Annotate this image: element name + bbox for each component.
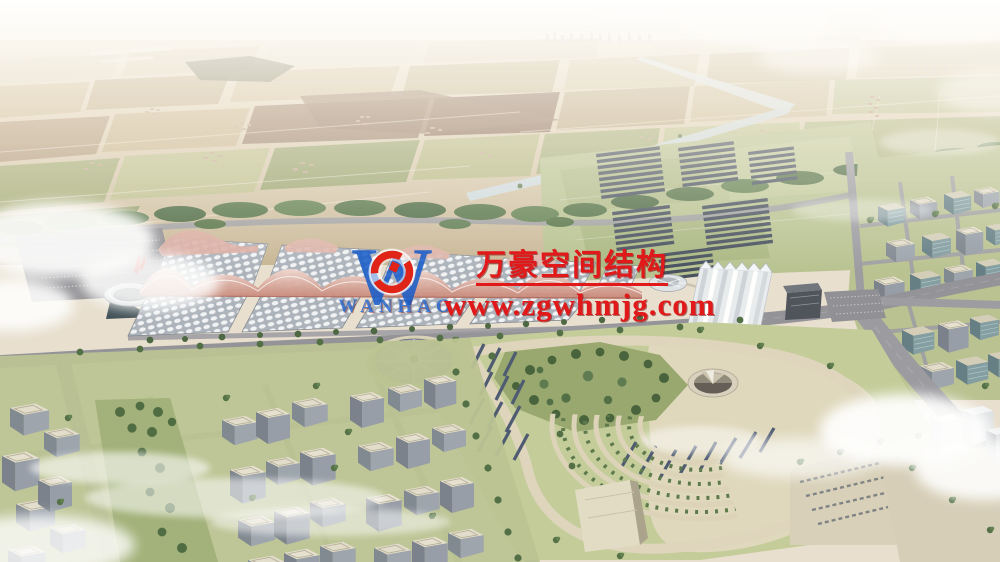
watermark-website: www.zgwhmjg.com bbox=[444, 287, 716, 323]
watermark-company-name: 万豪空间结构 bbox=[476, 250, 668, 286]
screenshot-root: W WANHAO 万豪空间结构 www.zgwhmjg.com bbox=[0, 0, 1000, 562]
